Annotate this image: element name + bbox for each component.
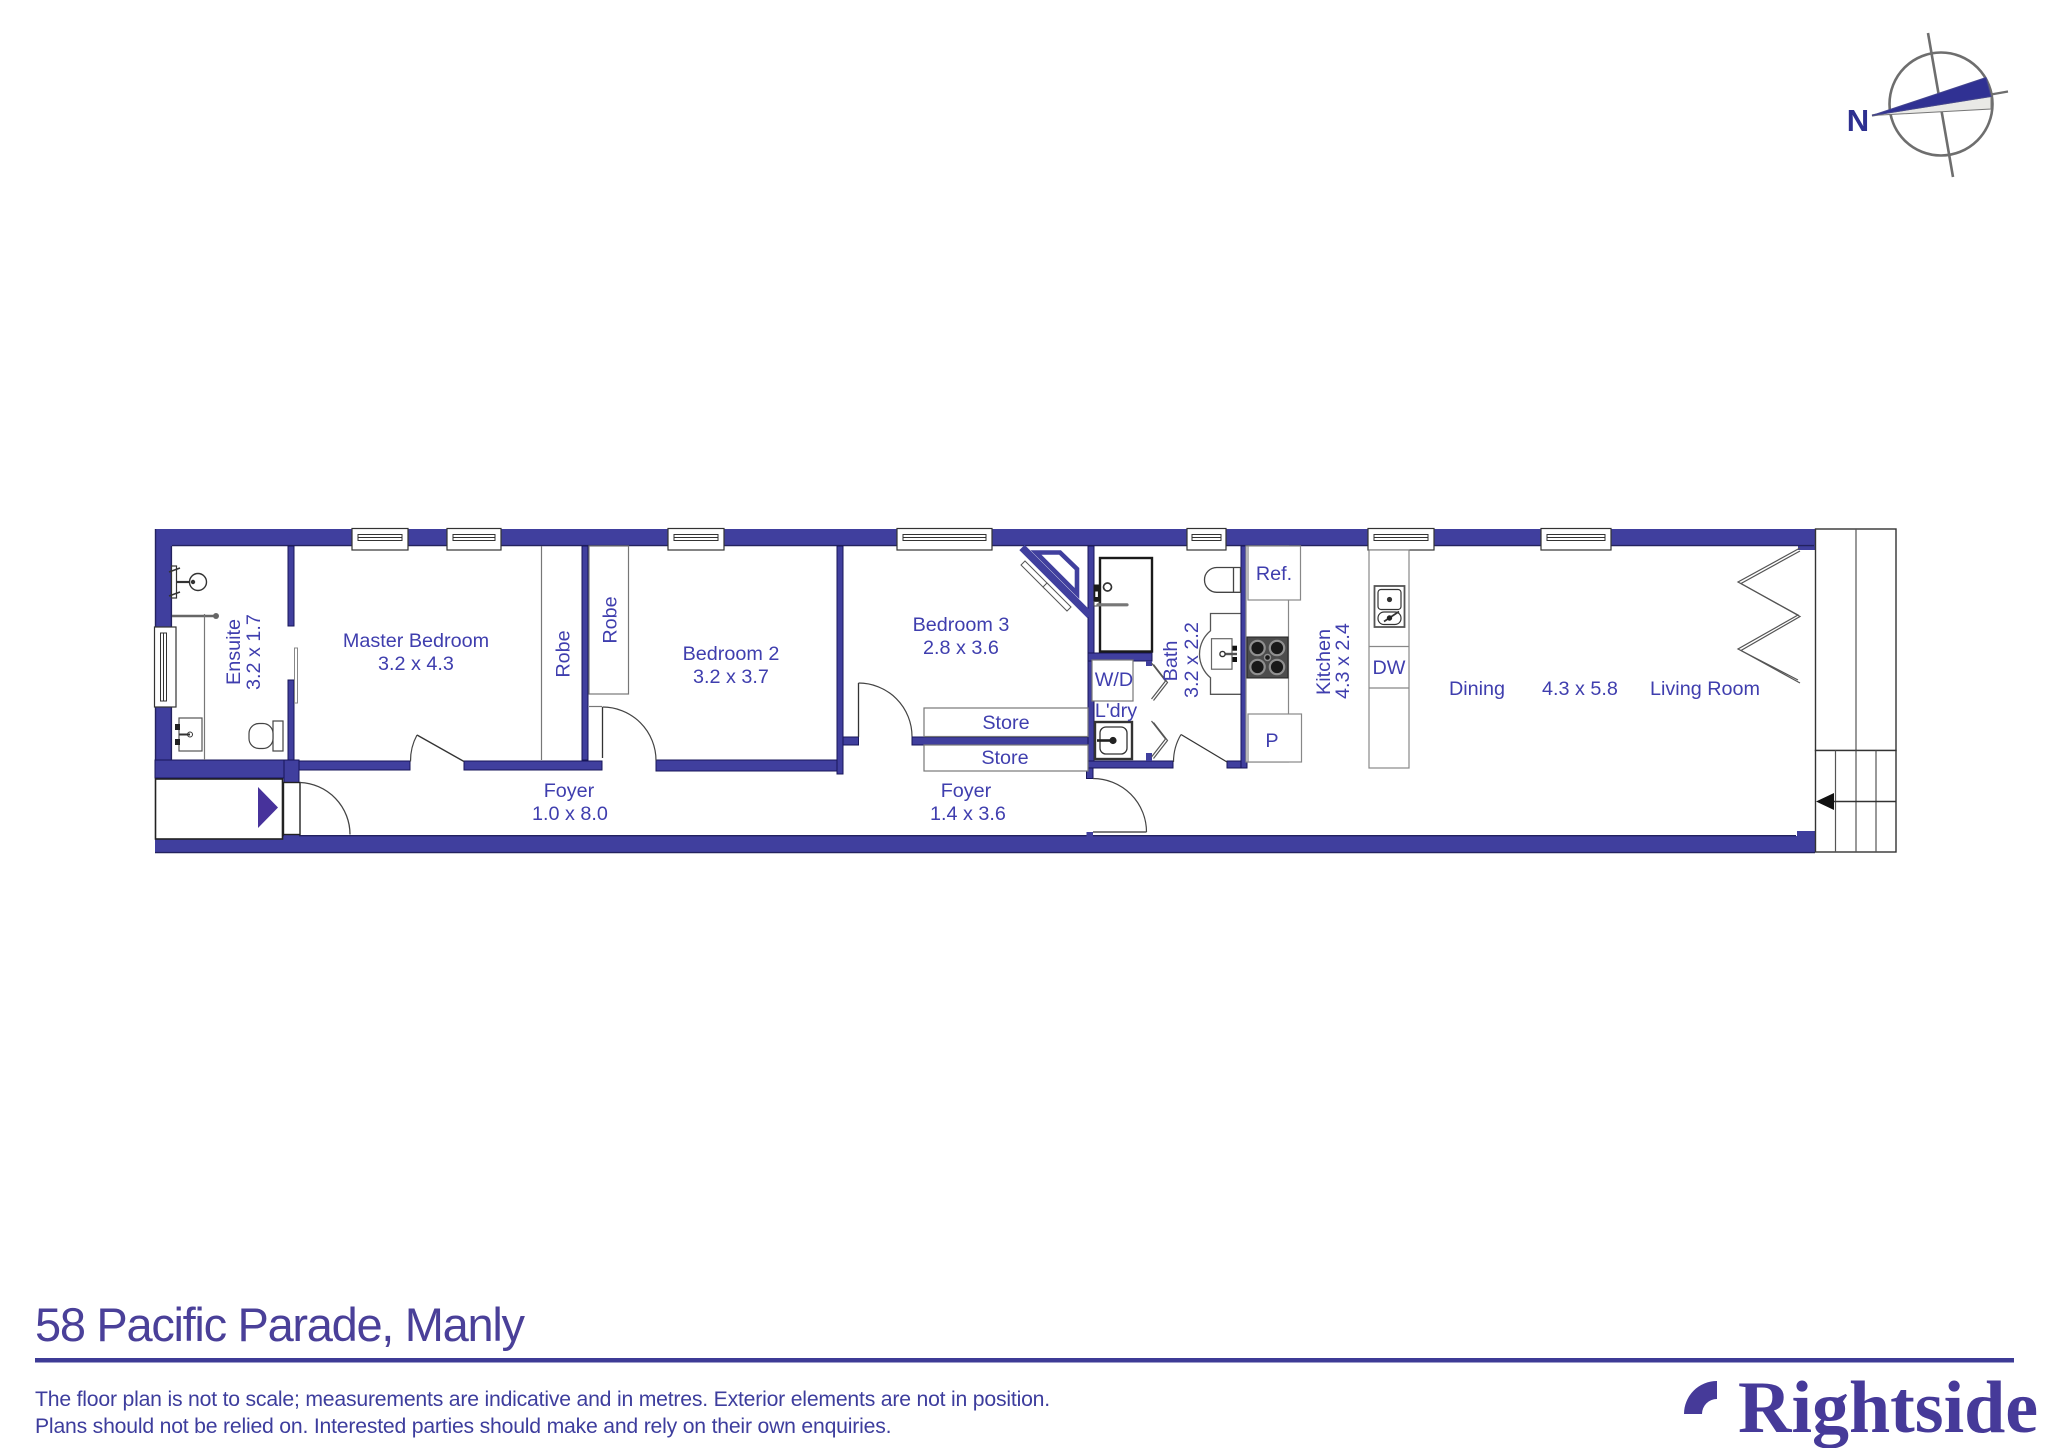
- svg-text:Store: Store: [982, 712, 1029, 734]
- svg-text:The floor plan is not to scale: The floor plan is not to scale; measurem…: [35, 1388, 1050, 1411]
- svg-text:3.2 x 2.2: 3.2 x 2.2: [1181, 622, 1203, 698]
- svg-text:Bath: Bath: [1160, 641, 1182, 682]
- svg-text:3.2 x 4.3: 3.2 x 4.3: [378, 653, 454, 675]
- svg-text:Plans should not be relied on.: Plans should not be relied on. Intereste…: [35, 1415, 891, 1438]
- svg-text:Foyer: Foyer: [544, 780, 595, 802]
- svg-text:3.2 x 3.7: 3.2 x 3.7: [693, 666, 769, 688]
- svg-text:Dining: Dining: [1449, 678, 1505, 700]
- svg-text:L'dry: L'dry: [1095, 700, 1137, 722]
- svg-text:4.3 x 5.8: 4.3 x 5.8: [1542, 678, 1618, 700]
- svg-text:Robe: Robe: [600, 596, 622, 643]
- svg-text:W/D: W/D: [1095, 669, 1133, 691]
- svg-text:Master Bedroom: Master Bedroom: [343, 630, 489, 652]
- svg-text:P: P: [1265, 730, 1278, 752]
- svg-text:Bedroom 3: Bedroom 3: [913, 614, 1010, 636]
- svg-text:Robe: Robe: [553, 630, 575, 677]
- svg-text:Living Room: Living Room: [1650, 678, 1760, 700]
- svg-text:Store: Store: [981, 747, 1028, 769]
- svg-text:3.2 x 1.7: 3.2 x 1.7: [243, 614, 265, 690]
- svg-text:1.0 x 8.0: 1.0 x 8.0: [532, 803, 608, 825]
- svg-text:58 Pacific Parade, Manly: 58 Pacific Parade, Manly: [35, 1298, 525, 1351]
- svg-text:2.8 x 3.6: 2.8 x 3.6: [923, 637, 999, 659]
- svg-text:Bedroom 2: Bedroom 2: [683, 643, 780, 665]
- svg-text:Foyer: Foyer: [941, 780, 992, 802]
- svg-text:4.3 x 2.4: 4.3 x 2.4: [1332, 623, 1354, 699]
- svg-text:1.4 x 3.6: 1.4 x 3.6: [930, 803, 1006, 825]
- svg-text:Rightside: Rightside: [1738, 1367, 2038, 1448]
- svg-text:Ref.: Ref.: [1256, 563, 1292, 585]
- svg-text:Ensuite: Ensuite: [223, 619, 245, 685]
- svg-text:DW: DW: [1373, 657, 1406, 679]
- svg-text:N: N: [1847, 103, 1869, 138]
